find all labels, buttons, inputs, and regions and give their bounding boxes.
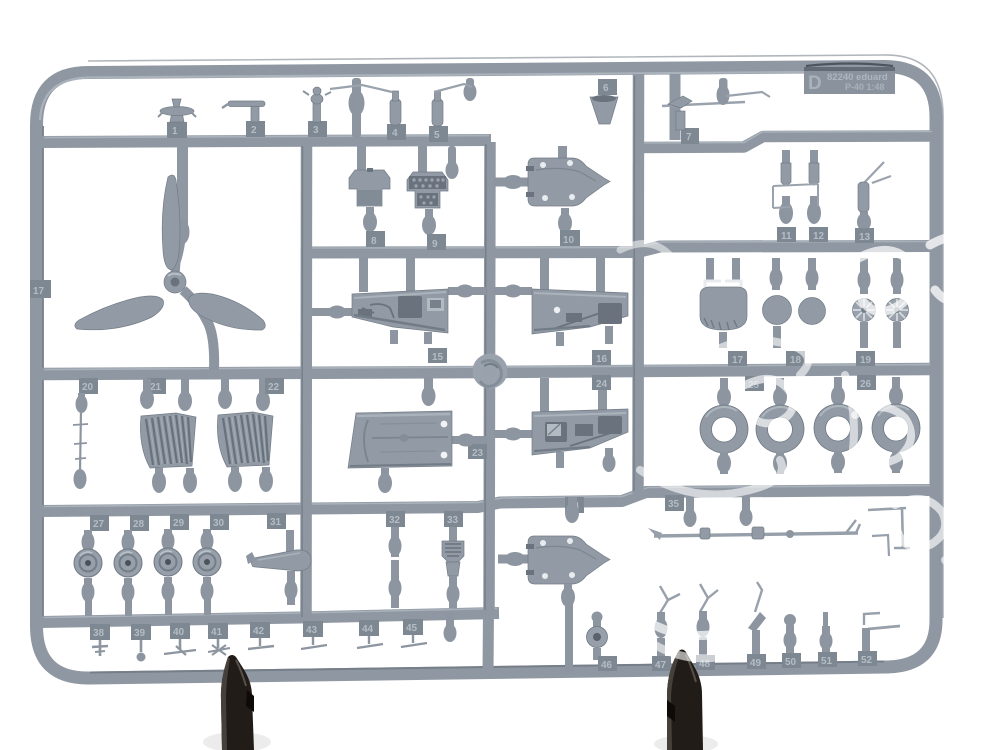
svg-text:32: 32 [389,515,401,526]
svg-text:52: 52 [861,655,873,666]
svg-text:13: 13 [859,232,871,243]
svg-text:28: 28 [133,519,145,530]
svg-text:5: 5 [434,130,440,141]
svg-text:11: 11 [781,231,792,242]
svg-text:40: 40 [173,627,185,638]
svg-text:7: 7 [686,132,692,143]
svg-text:9: 9 [432,239,438,250]
svg-text:24: 24 [596,379,608,390]
svg-text:3: 3 [313,125,319,136]
svg-text:15: 15 [432,352,444,363]
svg-text:30: 30 [213,518,225,529]
svg-text:51: 51 [821,656,833,667]
svg-text:12: 12 [813,231,825,242]
svg-text:21: 21 [150,382,162,393]
svg-text:29: 29 [173,518,185,529]
svg-text:22: 22 [268,382,280,393]
svg-text:20: 20 [82,382,94,393]
svg-text:46: 46 [601,660,613,671]
svg-text:27: 27 [93,519,105,530]
svg-text:47: 47 [655,660,667,671]
svg-text:18: 18 [790,355,802,366]
svg-text:33: 33 [447,515,459,526]
svg-text:6: 6 [603,83,609,94]
svg-text:17: 17 [732,355,744,366]
svg-text:35: 35 [668,499,680,510]
svg-text:23: 23 [472,448,484,459]
svg-text:49: 49 [750,658,762,669]
svg-text:44: 44 [362,624,374,635]
svg-text:8: 8 [371,236,377,247]
svg-text:31: 31 [270,517,282,528]
svg-text:10: 10 [563,235,575,246]
svg-text:19: 19 [860,355,872,366]
svg-text:41: 41 [211,627,223,638]
svg-text:38: 38 [93,628,105,639]
svg-text:P-40 1:48: P-40 1:48 [845,82,885,92]
svg-text:45: 45 [406,623,418,634]
svg-text:43: 43 [306,625,318,636]
svg-text:50: 50 [785,657,797,668]
svg-text:16: 16 [596,354,608,365]
svg-text:4: 4 [392,128,398,139]
svg-text:1: 1 [172,126,178,137]
svg-text:D: D [808,73,822,94]
svg-text:2: 2 [251,125,257,136]
svg-text:39: 39 [134,628,146,639]
svg-text:26: 26 [860,379,872,390]
svg-text:17: 17 [33,286,45,297]
svg-text:42: 42 [253,626,265,637]
